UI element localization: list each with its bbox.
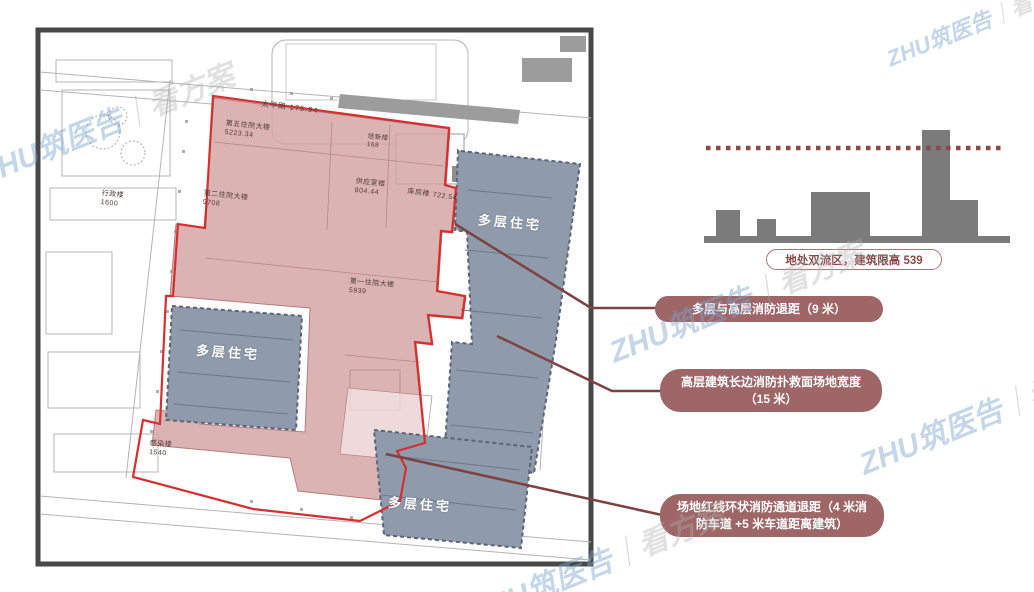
annotation-pill-setback: 多层与高层消防退距（9 米） xyxy=(655,296,883,322)
annotation-pill-fire-lane: 场地红线环状消防通道退距（4 米消防车道 +5 米车道距离建筑） xyxy=(660,494,884,537)
residential-bottom xyxy=(374,430,532,548)
height-bar xyxy=(811,192,870,236)
ground-baseline xyxy=(704,236,1010,243)
building-label: 行政楼 1600 xyxy=(100,190,124,210)
height-limit-caption: 地处双流区，建筑限高 539 xyxy=(766,249,942,270)
building-label: 供应室楼 804.44 xyxy=(354,178,386,199)
residential-left xyxy=(166,306,302,430)
building-label: 培新楼 168 xyxy=(366,133,389,151)
height-bar xyxy=(757,219,776,236)
height-bar xyxy=(950,200,978,236)
height-diagram xyxy=(704,130,1010,243)
annotation-pill-rescue-face: 高层建筑长边消防扑救面场地宽度（15 米） xyxy=(660,369,882,412)
site-analysis-diagram: 太平路 175.94 第五住院大楼 5223.34 第二住院大楼 9708 培新… xyxy=(0,0,1034,592)
building-label: 感染楼 1540 xyxy=(149,440,173,459)
height-bar xyxy=(716,210,740,236)
